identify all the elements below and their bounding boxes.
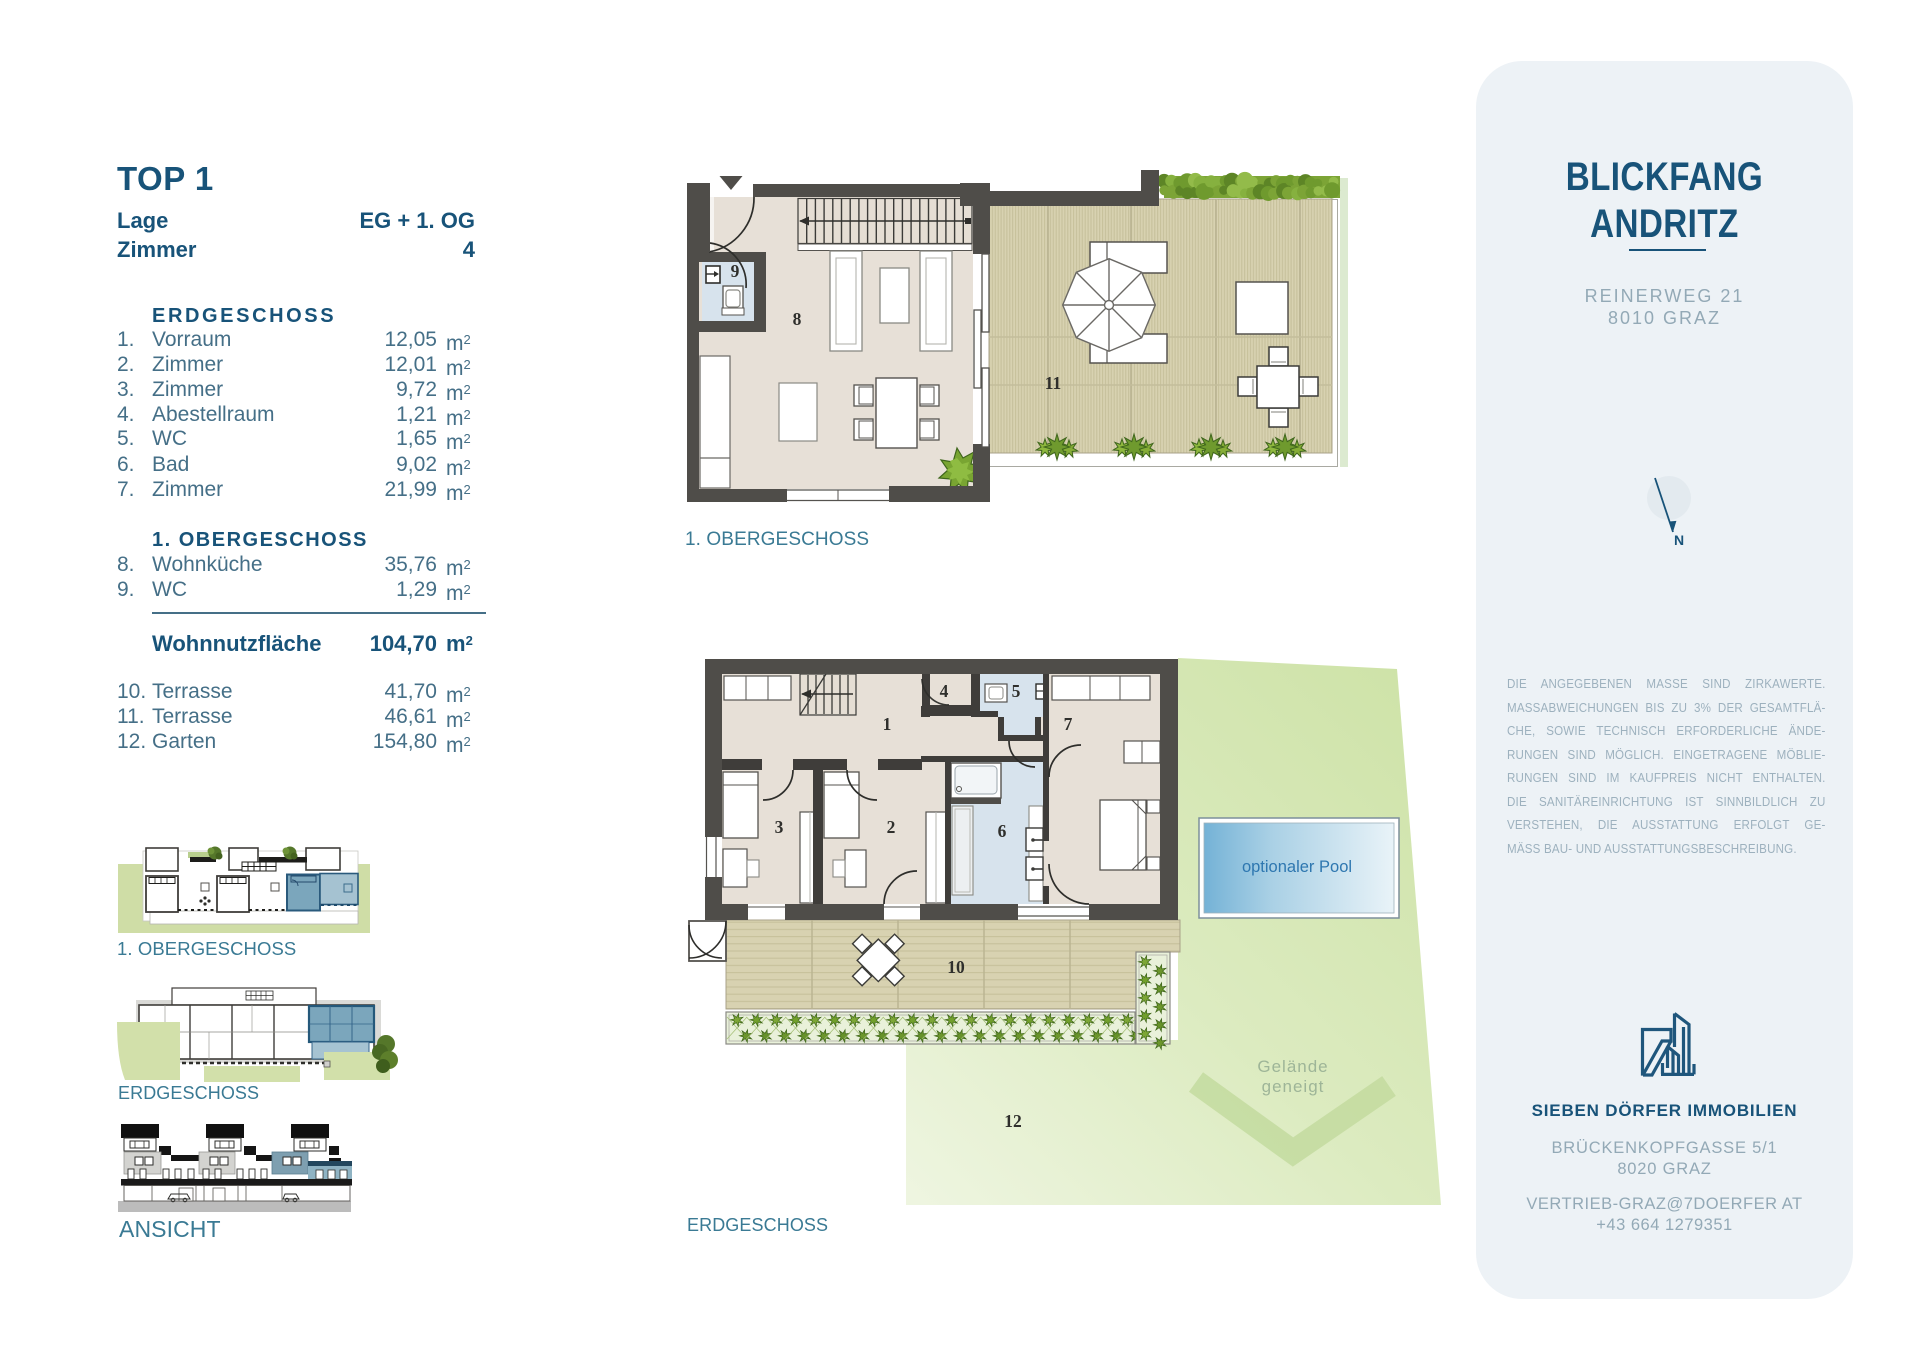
svg-text:8: 8: [793, 309, 802, 329]
svg-text:3: 3: [775, 817, 784, 837]
svg-text:12: 12: [1004, 1111, 1022, 1131]
svg-text:10: 10: [947, 957, 965, 977]
svg-text:N: N: [1674, 532, 1684, 548]
svg-text:Gelände: Gelände: [1257, 1057, 1328, 1076]
svg-text:1: 1: [883, 714, 892, 734]
svg-text:2: 2: [887, 817, 896, 837]
svg-text:5: 5: [1012, 681, 1021, 701]
svg-text:optionaler Pool: optionaler Pool: [1242, 858, 1352, 876]
svg-text:4: 4: [940, 681, 949, 701]
svg-text:6: 6: [998, 821, 1007, 841]
svg-text:geneigt: geneigt: [1262, 1077, 1325, 1096]
svg-text:11: 11: [1045, 373, 1062, 393]
svg-text:7: 7: [1064, 714, 1073, 734]
svg-text:9: 9: [731, 261, 740, 281]
